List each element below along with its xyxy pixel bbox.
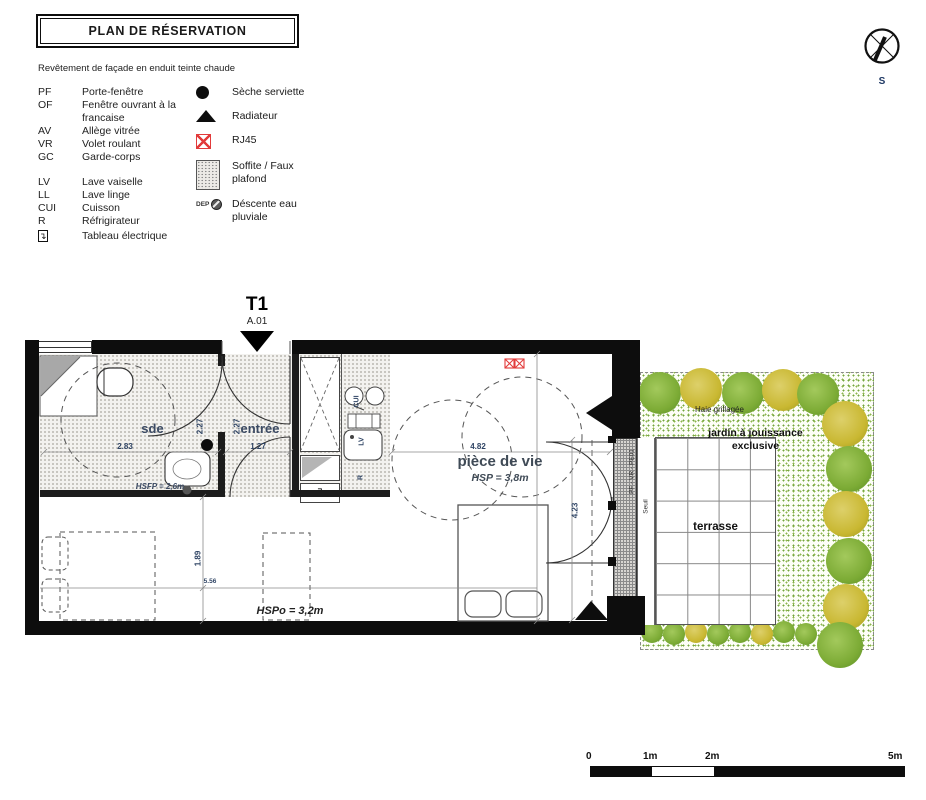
- scale-label: 2m: [705, 751, 719, 762]
- dim-sde-depth: 2.27: [196, 407, 205, 447]
- ceiling-height-piece-de-vie: HSP = 3,8m: [440, 472, 560, 484]
- scale-segment: [591, 767, 652, 776]
- bed: [458, 505, 548, 621]
- scale-bar: [590, 766, 905, 777]
- dim-vie-width: 4.82: [463, 442, 493, 451]
- dim-sde-width: 2.83: [110, 442, 140, 451]
- dim-vie-depth: 4.23: [571, 491, 580, 531]
- floorplan-linework: [0, 0, 926, 800]
- scale-label: 1m: [643, 751, 657, 762]
- label-r: R: [358, 463, 365, 493]
- shower: [40, 356, 97, 416]
- dim-total-width: 5.56: [196, 578, 224, 585]
- radiator: [586, 396, 612, 430]
- floorplan-page: PLAN DE RÉSERVATION Revêtement de façade…: [0, 0, 926, 800]
- ceiling-height-living: HSPo = 3,2m: [230, 605, 350, 617]
- rj45-outlet: [505, 359, 524, 368]
- dim-entree-width: 1.27: [243, 442, 273, 451]
- label-lv: LV: [359, 427, 366, 457]
- scale-segment: [714, 767, 904, 776]
- label-cui: CUI: [354, 387, 361, 417]
- dim-bed-zone: 1.89: [194, 539, 203, 579]
- dim-entree-depth: 2.27: [233, 407, 242, 447]
- scale-label: 0: [586, 751, 592, 762]
- scale-label: 5m: [888, 751, 902, 762]
- room-label-sde: sde: [125, 421, 180, 436]
- radiator: [575, 601, 608, 620]
- furniture-outline: [60, 532, 155, 620]
- toilet: [97, 368, 133, 396]
- cooktop: [345, 387, 384, 410]
- scale-segment: [652, 767, 714, 776]
- ceiling-height-sde: HSFP = 2,6m: [110, 482, 210, 491]
- room-label-piece-de-vie: pièce de vie: [430, 453, 570, 470]
